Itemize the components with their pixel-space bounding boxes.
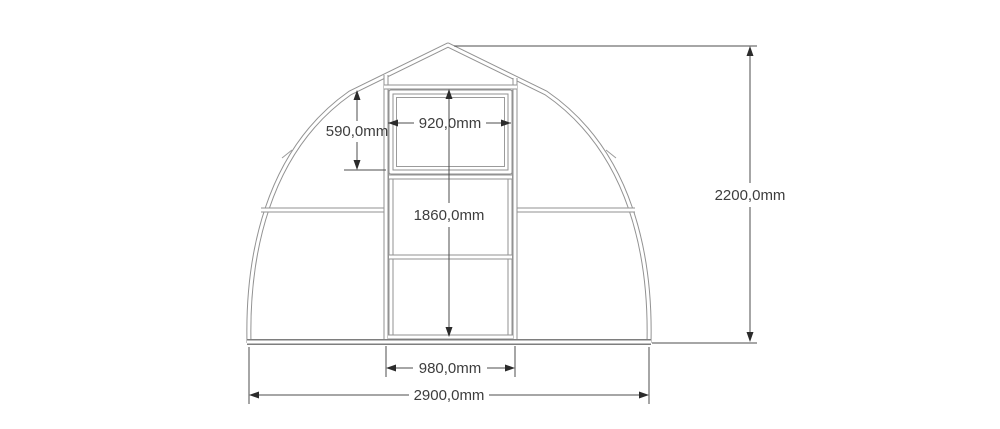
door-window-frame-fill <box>391 92 510 172</box>
arrow-up-icon <box>747 46 754 56</box>
arrow-down-icon <box>354 160 361 170</box>
dim-label-door-width: 980,0mm <box>419 360 482 377</box>
dimension-door-width: 980,0mm <box>386 346 515 377</box>
door-window-inner-frame <box>397 98 505 167</box>
dim-label-window-height: 590,0mm <box>326 123 389 140</box>
arrow-down-icon <box>747 332 754 342</box>
arrow-left-icon <box>386 365 396 372</box>
greenhouse-front-elevation-drawing: 590,0mm 920,0mm 1860,0mm 2200,0mm 980,0m… <box>0 0 1000 429</box>
door-window-frame-edge <box>391 92 510 172</box>
door-window-frame <box>391 92 510 172</box>
drawing-canvas: 590,0mm 920,0mm 1860,0mm 2200,0mm 980,0m… <box>0 0 1000 429</box>
dim-label-overall-width: 2900,0mm <box>414 387 485 404</box>
arrow-left-icon <box>249 392 259 399</box>
arrow-right-icon <box>505 365 515 372</box>
arrow-right-icon <box>639 392 649 399</box>
dim-label-overall-height: 2200,0mm <box>715 187 786 204</box>
dim-label-window-width: 920,0mm <box>419 115 482 132</box>
dim-label-door-opening-height: 1860,0mm <box>414 207 485 224</box>
